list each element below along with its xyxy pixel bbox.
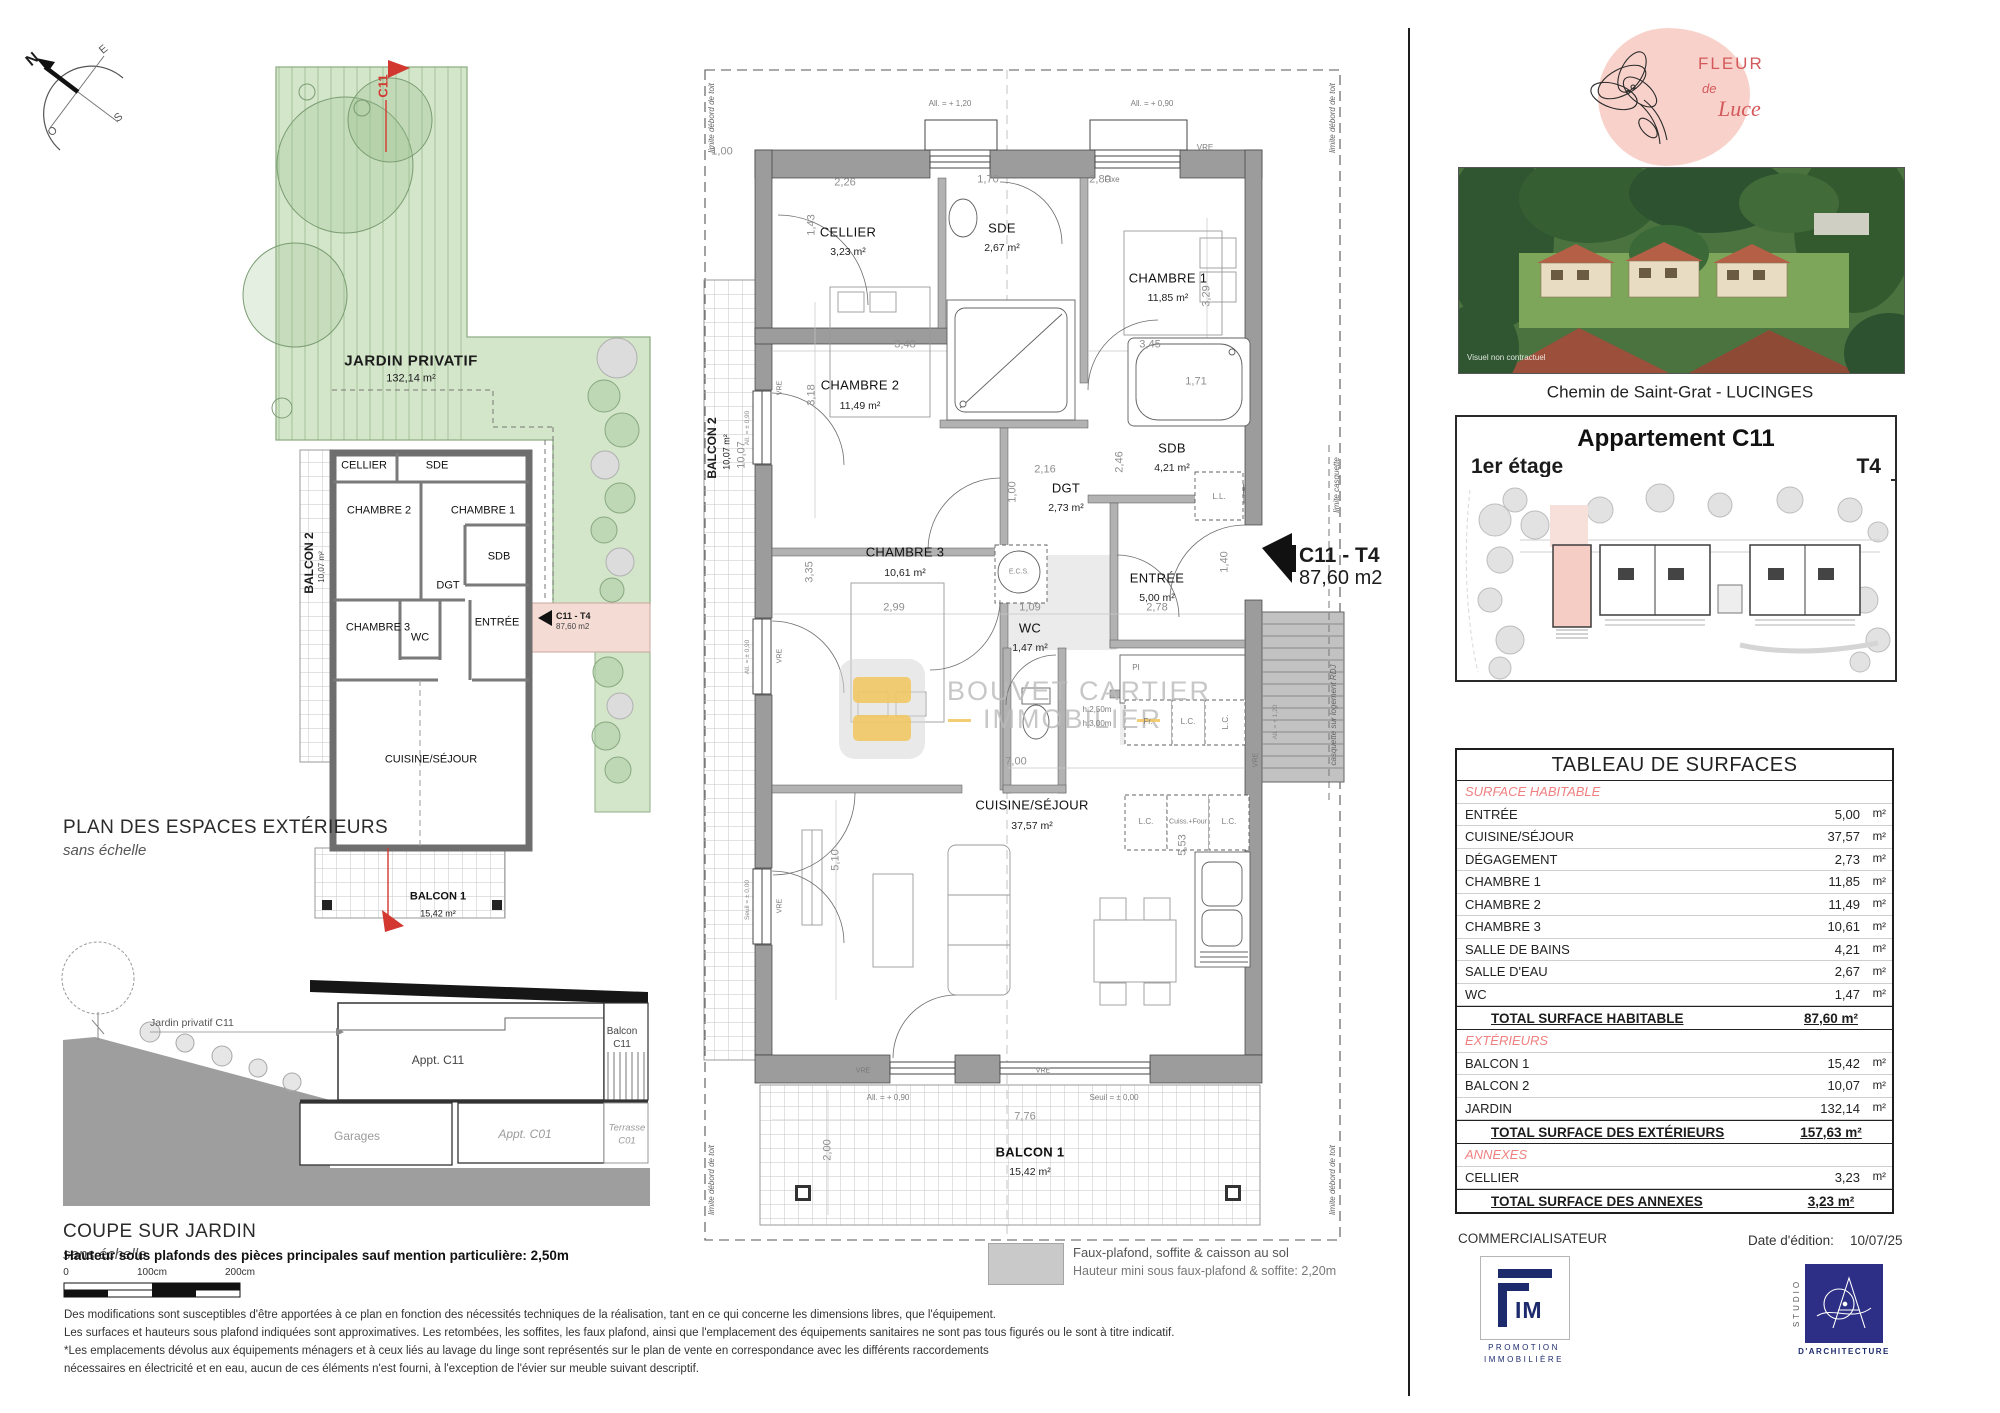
surface-table: TABLEAU DE SURFACES SURFACE HABITABLE EN… [1455,748,1894,1214]
total-value: 157,63 m² [1776,1125,1886,1140]
annotation-lc: L.C. [1222,715,1230,730]
dim-label: 3,29 [1202,285,1213,306]
row-unit: m² [1860,1171,1886,1183]
sp-room-balcon2: BALCON 2 [303,532,315,593]
annotation-limite-toit: limite débord de toit [708,1145,716,1215]
annotation-vre: VRE [856,1068,870,1075]
dim-label: 2,46 [1115,451,1126,472]
room-balcon1: BALCON 1 [996,1146,1065,1159]
watermark-dash [948,719,971,722]
row-value: 5,00 [1798,807,1860,822]
row-unit: m² [1860,921,1886,933]
table-total-row: TOTAL SURFACE DES EXTÉRIEURS157,63 m² [1457,1120,1892,1144]
annotation-vre: VRE [777,649,784,663]
table-total-row: TOTAL SURFACE HABITABLE87,60 m² [1457,1006,1892,1030]
project-address: Chemin de Saint-Grat - LUCINGES [1547,384,1813,401]
row-unit: m² [1860,988,1886,1000]
sp-room-balcon1: BALCON 1 [410,892,466,903]
coupe-terrasse-l2: C01 [618,1136,635,1146]
table-total-row: TOTAL SURFACE DES ANNEXES3,23 m² [1457,1189,1892,1212]
annotation-vre: VRE [1253,753,1260,767]
room-sdb: SDB [1158,442,1186,455]
edition-date-label: Date d'édition: [1748,1234,1834,1248]
area-balcon2: 10,07 m² [723,434,732,470]
annotation-limite-toit: limite débord de toit [1329,1145,1337,1215]
scalebar-0: 0 [63,1268,69,1278]
sp-room-chambre3: CHAMBRE 3 [346,623,410,634]
houses [1537,242,1791,297]
sp-room-cuisine: CUISINE/SÉJOUR [385,755,477,766]
table-row: BALCON 210,07m² [1457,1075,1892,1098]
row-label: DÉGAGEMENT [1465,852,1798,867]
annotation-allege: All. = + 0,90 [1131,100,1174,108]
fim-promo-line1: PROMOTION [1464,1344,1584,1352]
annotation-vre: VRE [1036,1068,1050,1075]
annotation-fr: Fr. [1143,718,1152,726]
studio-logo-glyph [1805,1264,1883,1343]
row-label: CUISINE/SÉJOUR [1465,829,1798,844]
coupe-terrasse-l1: Terrasse [609,1123,646,1133]
sp-room-wc: WC [411,633,429,644]
table-row: CHAMBRE 111,85m² [1457,871,1892,894]
exterior-plan-scale: sans échelle [63,843,146,858]
row-label: BALCON 1 [1465,1056,1798,1071]
logo-bar [853,677,911,703]
garden-area: 132,14 m² [386,374,436,385]
row-label: BALCON 2 [1465,1078,1798,1093]
brand-name-top: FLEUR [1698,55,1764,72]
note-line-1: Des modifications sont susceptibles d'êt… [64,1310,996,1322]
sp-room-chambre2: CHAMBRE 2 [347,506,411,517]
sp-area-balcon1: 15,42 m² [420,910,456,919]
dim-label: 1,70 [977,175,998,186]
annotation-ecs: E.C.S. [1009,569,1029,576]
room-wc: WC [1019,622,1041,635]
dim-label: 1,00 [1008,481,1019,502]
row-unit: m² [1860,1102,1886,1114]
dim-balcon2: 10,07 [737,441,748,469]
dim-label: 2,78 [1146,603,1167,614]
row-value: 1,47 [1798,987,1860,1002]
balcony2-deck [704,280,760,1060]
row-value: 37,57 [1798,829,1860,844]
photo-scene [1459,168,1904,373]
annotation-lc: L.C. [1139,818,1154,826]
room-chambre2: CHAMBRE 2 [821,379,900,392]
sp-unit-area: 87,60 m2 [556,623,589,631]
garden-title: JARDIN PRIVATIF [344,354,478,369]
fim-promo-line2: IMMOBILIÈRE [1464,1356,1584,1364]
annotation-seuil: Seuil = ± 0,00 [745,880,752,920]
bouvet-cartier-logo [839,659,925,759]
annotation-lc: L.C. [1181,718,1196,726]
row-value: 2,73 [1798,852,1860,867]
annotation-vre: VRE [1197,144,1213,152]
row-unit: m² [1860,853,1886,865]
row-value: 15,42 [1798,1056,1860,1071]
annotation-ll: L.L. [1212,493,1225,501]
room-cellier: CELLIER [820,226,876,239]
flower-sketch-icon [1570,40,1700,160]
dim-label: 3,45 [1139,340,1160,351]
dim-label: 3,35 [805,561,816,582]
row-value: 132,14 [1798,1101,1860,1116]
row-label: SALLE D'EAU [1465,964,1798,979]
total-value: 87,60 m² [1776,1011,1886,1026]
row-value: 11,85 [1798,874,1860,889]
unit-arrow-icon [1262,533,1296,583]
row-label: JARDIN [1465,1101,1798,1116]
area-cuisine: 37,57 m² [1011,821,1052,832]
apartment-floor: 1er étage [1471,455,1563,479]
coupe-appt-c11: Appt. C11 [412,1054,464,1066]
area-balcon1: 15,42 m² [1009,1167,1050,1178]
scalebar-200: 200cm [225,1268,255,1278]
garden-unit-marker: C11 [377,74,390,97]
table-row: JARDIN132,14m² [1457,1098,1892,1121]
area-cellier: 3,23 m² [830,247,866,258]
row-label: CHAMBRE 3 [1465,919,1798,934]
fim-logo: IM [1480,1256,1570,1340]
dim-label: 1,71 [1185,377,1206,388]
annotation-casquette-rdj: casquette sur logement RDJ [1330,665,1338,766]
row-unit: m² [1860,808,1886,820]
table-section-header: SURFACE HABITABLE [1457,781,1892,804]
sp-room-sde: SDE [426,461,449,472]
legend-line-1: Faux-plafond, soffite & caisson au sol [1073,1246,1289,1259]
annotation-seuil: Seuil = ± 0,00 [1089,1094,1138,1102]
table-row: ENTRÉE5,00m² [1457,804,1892,827]
row-unit: m² [1860,966,1886,978]
row-label: CHAMBRE 1 [1465,874,1798,889]
sp-room-cellier: CELLIER [341,461,387,472]
apartment-type: T4 [1856,455,1881,479]
legend-line-2: Hauteur mini sous faux-plafond & soffite… [1073,1265,1336,1278]
photo-disclaimer: Visuel non contractuel [1467,354,1546,362]
row-unit: m² [1860,943,1886,955]
row-unit: m² [1860,831,1886,843]
row-unit: m² [1860,898,1886,910]
annotation-height: h:3,00m [1083,720,1112,728]
annotation-vre: VRE [777,899,784,913]
annotation-lc: L.C. [1222,818,1237,826]
exterior-plan-caption: PLAN DES ESPACES EXTÉRIEURS [63,818,388,837]
sp-area-balcon2: 10,07 m² [318,551,326,583]
apartment-title: Appartement C11 [1457,425,1895,453]
annotation-fixe: Fixe [1104,176,1119,184]
note-line-2: Les surfaces et hauteurs sous plafond in… [64,1328,1174,1340]
exterior-spaces-plan [20,20,680,950]
total-label: TOTAL SURFACE DES ANNEXES [1491,1194,1776,1209]
area-dgt: 2,73 m² [1048,503,1084,514]
coupe-balcon-l2: C11 [613,1040,631,1050]
dim-label: 5,53 [1178,834,1189,855]
note-line-4: nécessaires en électricité et en eau, au… [64,1364,699,1376]
dim-label: 3,48 [894,340,915,351]
table-row: CELLIER3,23m² [1457,1167,1892,1190]
row-value: 4,21 [1798,942,1860,957]
total-value: 3,23 m² [1776,1194,1886,1209]
annotation-cuisson: Cuiss.+Four [1169,819,1207,826]
sp-room-entree: ENTRÉE [475,618,520,629]
scalebar-100: 100cm [137,1268,167,1278]
area-chambre2: 11,49 m² [840,401,881,412]
dim-label: 7,76 [1014,1112,1035,1123]
watermark-line1: BOUVET CARTIER [947,678,1211,705]
coupe-garden-label: Jardin privatif C11 [150,1018,234,1029]
legend-swatch [988,1243,1064,1285]
studio-architecture-label: D'ARCHITECTURE [1798,1348,1890,1356]
room-chambre3: CHAMBRE 3 [866,546,945,559]
sp-room-chambre1: CHAMBRE 1 [451,506,515,517]
row-value: 11,49 [1798,897,1860,912]
row-value: 3,23 [1798,1170,1860,1185]
table-row: SALLE DE BAINS4,21m² [1457,939,1892,962]
row-label: WC [1465,987,1798,1002]
area-sde: 2,67 m² [984,243,1020,254]
row-value: 10,07 [1798,1078,1860,1093]
dim-label: 2,99 [883,603,904,614]
table-row: BALCON 115,42m² [1457,1053,1892,1076]
annotation-allege: All. = + 1,20 [929,100,972,108]
row-label: SALLE DE BAINS [1465,942,1798,957]
row-value: 10,61 [1798,919,1860,934]
row-unit: m² [1860,1057,1886,1069]
dim-label: 5,10 [831,849,842,870]
row-value: 2,67 [1798,964,1860,979]
coupe-appt-c01: Appt. C01 [498,1128,551,1140]
surface-table-title: TABLEAU DE SURFACES [1457,750,1892,781]
scale-bar [64,1283,242,1299]
room-sde: SDE [988,222,1016,235]
area-wc: 1,47 m² [1012,643,1048,654]
coupe-caption: COUPE SUR JARDIN [63,1222,256,1241]
room-balcon2: BALCON 2 [706,417,718,478]
garden-section-drawing [40,935,660,1225]
ceiling-height-note: Hauteur sous plafonds des pièces princip… [64,1249,569,1263]
annotation-allege: All. = + 0,90 [867,1094,910,1102]
dim-label: 1,09 [1019,603,1040,614]
studio-vertical-label: STUDIO [1793,1279,1801,1327]
area-sdb: 4,21 m² [1154,463,1190,474]
table-row: CUISINE/SÉJOUR37,57m² [1457,826,1892,849]
room-chambre1: CHAMBRE 1 [1129,272,1208,285]
dim-label: 3,18 [807,384,818,405]
brand-name-script: Luce [1718,98,1761,120]
row-unit: m² [1860,1080,1886,1092]
table-row: SALLE D'EAU2,67m² [1457,961,1892,984]
coupe-balcon-l1: Balcon [607,1027,638,1037]
room-cuisine: CUISINE/SÉJOUR [975,799,1088,812]
table-row: WC1,47m² [1457,984,1892,1007]
room-dgt: DGT [1052,482,1080,495]
total-label: TOTAL SURFACE DES EXTÉRIEURS [1491,1125,1776,1140]
plan-sheet: N E S O [0,0,2000,1413]
annotation-allege: All. = + 1,20 [1273,705,1280,740]
sp-room-dgt: DGT [436,581,459,592]
dim-label: 7,00 [1005,757,1026,768]
table-row: CHAMBRE 310,61m² [1457,916,1892,939]
area-chambre3: 10,61 m² [884,568,925,579]
table-row: DÉGAGEMENT2,73m² [1457,849,1892,872]
fim-logo-letters: IM [1515,1299,1543,1322]
table-row: CHAMBRE 211,49m² [1457,894,1892,917]
note-line-3: *Les emplacements dévolus aux équipement… [64,1346,989,1358]
watermark-line2: IMMOBILIER [983,706,1162,733]
row-unit: m² [1860,876,1886,888]
commercialisateur-label: COMMERCIALISATEUR [1458,1232,1607,1246]
room-entree: ENTRÉE [1130,572,1185,585]
annotation-limite-casquette: limite casquette [1333,457,1341,513]
coupe-garages: Garages [334,1130,380,1142]
dim-label: 1,43 [807,214,818,235]
annotation-limite-toit: limite débord de toit [1329,83,1337,153]
row-label: ENTRÉE [1465,807,1798,822]
annotation-height: h:2,50m [1083,706,1112,714]
total-label: TOTAL SURFACE HABITABLE [1491,1011,1776,1026]
project-photo: Visuel non contractuel [1458,167,1905,374]
table-section-header: EXTÉRIEURS [1457,1030,1892,1053]
annotation-limite-toit: limite débord de toit [708,83,716,153]
area-chambre1: 11,85 m² [1148,293,1189,304]
annotation-vre: VRE [777,381,784,395]
sp-unit-code: C11 - T4 [556,612,591,621]
dim-label: 1,40 [1220,551,1231,572]
row-label: CELLIER [1465,1170,1798,1185]
dim-label: 2,16 [1034,465,1055,476]
logo-bar [853,715,911,741]
row-label: CHAMBRE 2 [1465,897,1798,912]
dim-label: 2,00 [823,1139,834,1160]
site-plan [1457,477,1891,676]
unit-tag-area: 87,60 m2 [1299,568,1382,588]
brand-name-mid: de [1702,82,1716,95]
dim-label: 2,26 [834,178,855,189]
edition-date-value: 10/07/25 [1850,1234,1903,1248]
annotation-allege: All. = ± 0,90 [745,640,752,674]
unit-tag-code: C11 - T4 [1299,545,1380,566]
sp-room-sdb: SDB [488,552,511,563]
annotation-allege: All. = ± 0,90 [745,411,752,445]
table-section-header: ANNEXES [1457,1144,1892,1167]
annotation-pi: PI [1132,664,1140,672]
